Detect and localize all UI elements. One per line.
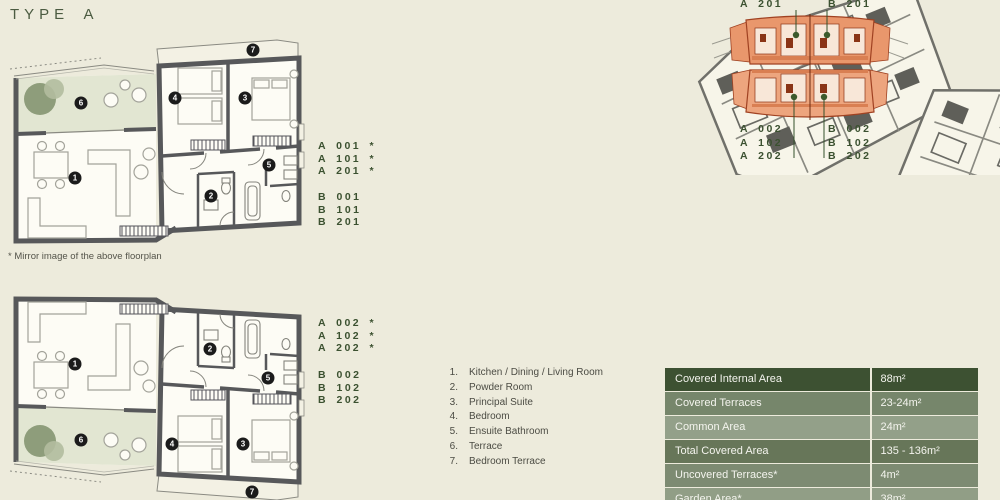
area-value: 23-24m² — [872, 392, 979, 415]
area-table: Covered Internal Area88m² Covered Terrac… — [665, 368, 978, 500]
room-marker-1: 1 — [69, 358, 82, 371]
area-label: Common Area — [665, 416, 870, 439]
legend-item: 6.Terrace — [444, 440, 603, 455]
floorplan-upper-drawing — [8, 36, 308, 248]
legend-label: Kitchen / Dining / Living Room — [469, 366, 603, 381]
keyplan: A 201 B 201 A 002 A 102 A 202 B 002 B 10… — [628, 0, 1000, 175]
area-value: 88m² — [872, 368, 979, 391]
floorplan-lower-drawing — [8, 292, 308, 500]
room-marker-3: 3 — [239, 92, 252, 105]
legend-number: 2. — [444, 381, 458, 396]
unit-label: A 201 * — [318, 165, 376, 178]
room-marker-7: 7 — [246, 486, 259, 499]
legend-item: 1.Kitchen / Dining / Living Room — [444, 366, 603, 381]
unit-list-lower-b: B 002 B 102 B 202 — [318, 369, 362, 407]
legend-number: 1. — [444, 366, 458, 381]
unit-label: A 102 — [740, 137, 783, 151]
legend-label: Principal Suite — [469, 396, 533, 411]
table-row: Covered Internal Area88m² — [665, 368, 978, 391]
unit-label: B 201 — [828, 0, 872, 12]
room-marker-7: 7 — [247, 44, 260, 57]
unit-label: B 101 — [318, 204, 362, 217]
unit-list-lower-a: A 002 * A 102 * A 202 * — [318, 317, 376, 355]
legend-number: 5. — [444, 425, 458, 440]
room-marker-3: 3 — [237, 438, 250, 451]
legend-label: Powder Room — [469, 381, 532, 396]
unit-label: B 001 — [318, 191, 362, 204]
area-label: Covered Internal Area — [665, 368, 870, 391]
area-label: Total Covered Area — [665, 440, 870, 463]
area-value: 24m² — [872, 416, 979, 439]
room-marker-4: 4 — [166, 438, 179, 451]
unit-list-upper-b: B 001 B 101 B 201 — [318, 191, 362, 229]
table-row: Covered Terraces23-24m² — [665, 392, 978, 415]
unit-label: B 002 — [318, 369, 362, 382]
unit-label: A 201 — [740, 0, 783, 12]
page: TYPE A 1 2 3 4 5 6 7 1 2 3 4 5 6 7 A 001… — [0, 0, 1000, 500]
area-label: Uncovered Terraces* — [665, 464, 870, 487]
floorplan-lower: 1 2 3 4 5 6 7 — [8, 292, 308, 500]
legend-number: 4. — [444, 410, 458, 425]
unit-list-upper-a: A 001 * A 101 * A 201 * — [318, 140, 376, 178]
keyplan-labels-a-lower: A 002 A 102 A 202 — [740, 123, 783, 164]
room-marker-6: 6 — [75, 97, 88, 110]
unit-label: B 102 — [828, 137, 872, 151]
page-title: TYPE A — [10, 6, 99, 23]
legend-number: 3. — [444, 396, 458, 411]
legend-number: 7. — [444, 455, 458, 470]
unit-label: A 002 * — [318, 317, 376, 330]
area-value: 38m² — [872, 488, 979, 500]
area-label: Garden Area* — [665, 488, 870, 500]
legend-label: Bedroom Terrace — [469, 455, 546, 470]
legend-item: 3.Principal Suite — [444, 396, 603, 411]
unit-label: A 202 * — [318, 342, 376, 355]
legend-item: 2.Powder Room — [444, 381, 603, 396]
keyplan-label-a201: A 201 — [740, 0, 783, 12]
legend-number: 6. — [444, 440, 458, 455]
mirror-note: * Mirror image of the above floorplan — [8, 251, 162, 262]
room-marker-6: 6 — [75, 434, 88, 447]
keyplan-drawing — [628, 0, 1000, 175]
unit-label: B 202 — [318, 394, 362, 407]
legend-item: 5.Ensuite Bathroom — [444, 425, 603, 440]
table-row: Garden Area*38m² — [665, 488, 978, 500]
legend-label: Bedroom — [469, 410, 510, 425]
table-row: Common Area24m² — [665, 416, 978, 439]
floorplan-upper: 1 2 3 4 5 6 7 — [8, 36, 308, 248]
unit-label: A 002 — [740, 123, 783, 137]
legend-item: 4.Bedroom — [444, 410, 603, 425]
area-value: 4m² — [872, 464, 979, 487]
room-marker-4: 4 — [169, 92, 182, 105]
unit-label: A 101 * — [318, 153, 376, 166]
area-label: Covered Terraces — [665, 392, 870, 415]
unit-label: B 202 — [828, 150, 872, 164]
keyplan-label-b201: B 201 — [828, 0, 872, 12]
room-marker-2: 2 — [205, 190, 218, 203]
area-value: 135 - 136m² — [872, 440, 979, 463]
unit-label: A 001 * — [318, 140, 376, 153]
room-marker-5: 5 — [263, 159, 276, 172]
unit-label: A 102 * — [318, 330, 376, 343]
legend-item: 7.Bedroom Terrace — [444, 455, 603, 470]
unit-label: B 102 — [318, 382, 362, 395]
room-legend: 1.Kitchen / Dining / Living Room 2.Powde… — [444, 366, 603, 470]
unit-label: B 201 — [318, 216, 362, 229]
room-marker-5: 5 — [262, 372, 275, 385]
room-marker-2: 2 — [204, 343, 217, 356]
table-row: Total Covered Area135 - 136m² — [665, 440, 978, 463]
room-marker-1: 1 — [69, 172, 82, 185]
unit-label: B 002 — [828, 123, 872, 137]
legend-label: Terrace — [469, 440, 502, 455]
keyplan-labels-b-lower: B 002 B 102 B 202 — [828, 123, 872, 164]
unit-label: A 202 — [740, 150, 783, 164]
table-row: Uncovered Terraces*4m² — [665, 464, 978, 487]
legend-label: Ensuite Bathroom — [469, 425, 549, 440]
